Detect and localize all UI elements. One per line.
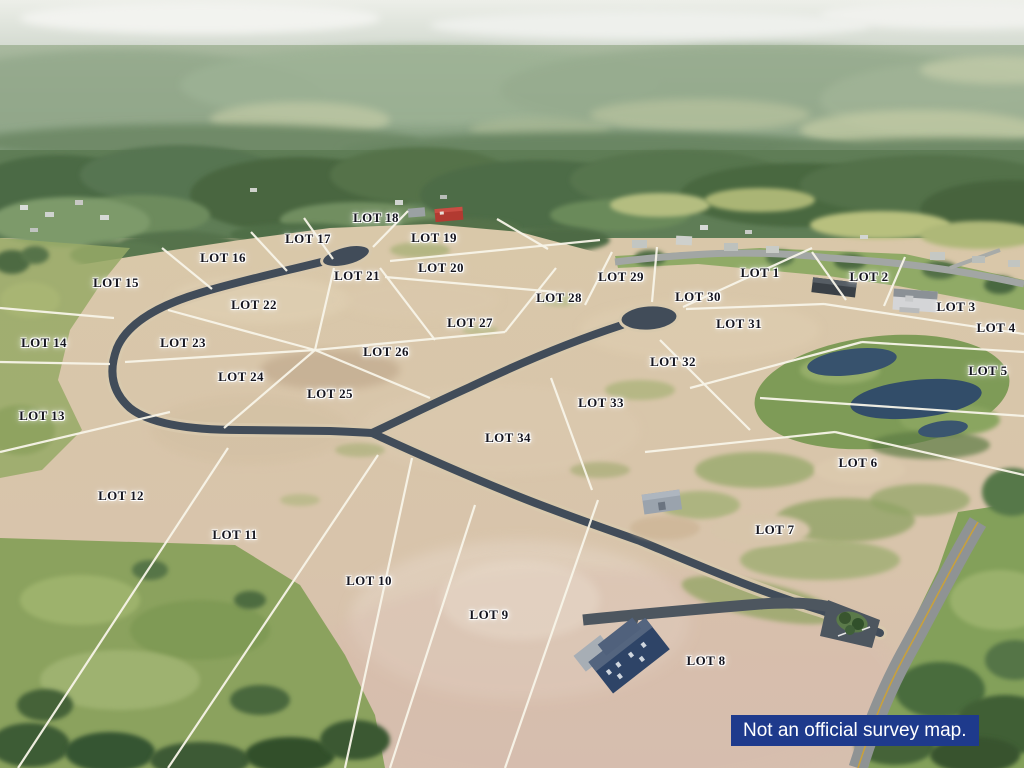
- disclaimer-text: Not an official survey map.: [743, 720, 967, 741]
- aerial-photo-scene: [0, 0, 1024, 768]
- aerial-lot-map: LOT 1LOT 2LOT 3LOT 4LOT 5LOT 6LOT 7LOT 8…: [0, 0, 1024, 768]
- gray-shed: [408, 207, 426, 217]
- red-barn: [434, 207, 463, 222]
- disclaimer-banner: Not an official survey map.: [731, 715, 979, 746]
